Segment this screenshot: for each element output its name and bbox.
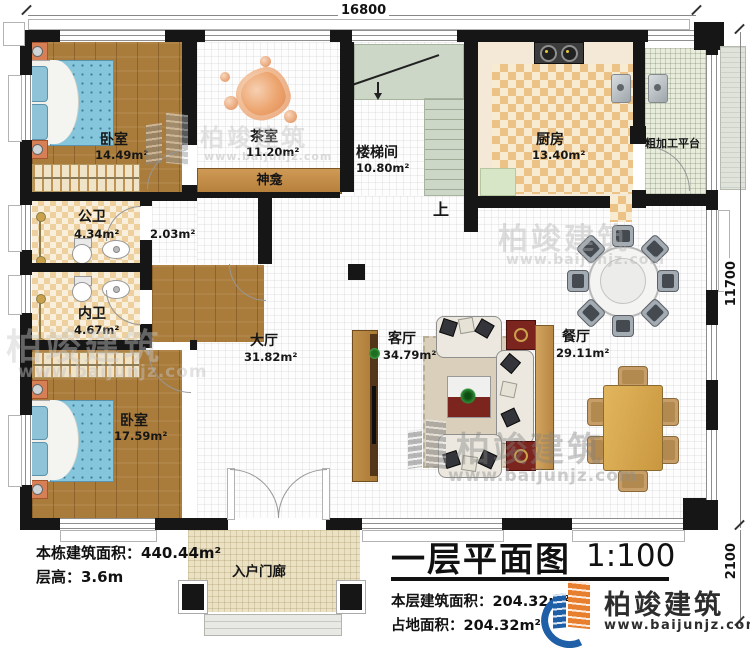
towel-rail-knob — [36, 294, 46, 304]
dining-chair — [612, 225, 634, 247]
window-sill — [60, 530, 157, 542]
kitchen-sink — [611, 74, 631, 103]
wall-segment — [645, 194, 718, 206]
note-floor-height: 层高：3.6m — [36, 566, 123, 587]
stove-burner-left — [540, 45, 557, 62]
coffee-table-plant — [460, 388, 476, 404]
window — [706, 430, 718, 500]
wall-segment — [190, 340, 197, 350]
wall-segment — [20, 518, 60, 530]
basin-public — [102, 240, 130, 259]
room-label-platform: 粗加工平台 — [645, 135, 700, 151]
window-sill — [8, 75, 22, 142]
tea-stone — [220, 72, 230, 82]
dimension-top-value: 16800 — [338, 3, 389, 18]
dining-chair — [618, 470, 648, 492]
room-area-dining: 29.11m² — [556, 346, 609, 360]
tea-stone — [260, 56, 271, 67]
stair-flight — [424, 98, 466, 196]
window-sill — [28, 19, 690, 30]
window — [60, 518, 155, 530]
room-label-porch: 入户门廊 — [232, 560, 286, 580]
stove — [534, 42, 584, 64]
sofa-pillow — [500, 381, 518, 399]
wall-pillar — [632, 190, 646, 208]
tea-stone — [224, 96, 238, 110]
dimension-right-value: 11700 — [724, 258, 739, 309]
room-label-tearoom: 茶室 — [250, 126, 278, 146]
window-sill — [8, 415, 22, 487]
floor-kitchen-entry — [610, 196, 632, 222]
porch-pillar — [340, 584, 362, 610]
room-label-shrine: 神龛 — [256, 173, 282, 188]
hall-pillar — [348, 264, 365, 280]
window-sill — [8, 275, 22, 315]
tv-wall-plant — [369, 348, 380, 359]
wall-segment — [258, 196, 272, 264]
exterior-ledge — [720, 46, 746, 190]
stove-burner-right — [561, 45, 578, 62]
wall-pillar — [630, 126, 646, 144]
room-area-bedroom2: 17.59m² — [114, 429, 167, 443]
stair-landing — [354, 44, 464, 100]
shrine-shelf: 神龛 — [197, 168, 342, 194]
room-area-tearoom: 11.20m² — [246, 145, 299, 159]
wall-segment — [20, 30, 60, 42]
wardrobe-bedroom2 — [32, 352, 140, 378]
dimension-line-right — [740, 32, 741, 528]
wall-segment — [20, 313, 32, 415]
towel-rail — [39, 216, 41, 260]
window — [60, 30, 165, 42]
wall-segment — [706, 380, 718, 430]
wall-segment — [330, 30, 352, 42]
floor-plan-canvas: 神龛 — [0, 0, 750, 648]
wall-segment — [478, 196, 610, 208]
rect-dining-table — [603, 385, 663, 471]
room-area-bedroom1: 14.49m² — [95, 148, 148, 162]
dining-chair — [612, 315, 634, 337]
room-area-hall: 31.82m² — [244, 350, 297, 364]
stairs-up-label: 上 — [433, 196, 449, 220]
towel-rail-knob — [36, 212, 46, 222]
tv-screen — [372, 386, 376, 444]
wall-segment — [633, 42, 645, 128]
logo-building-blue-icon — [553, 593, 566, 628]
side-cabinet-red — [506, 320, 536, 350]
dining-chair — [567, 270, 589, 292]
wall-segment — [706, 42, 718, 55]
platform-sink — [648, 74, 668, 103]
brand-website: www.baijunjz.com — [604, 618, 750, 633]
room-label-public-bath: 公卫 — [78, 206, 106, 226]
side-cabinet-red — [506, 441, 536, 471]
room-label-stair: 楼梯间 — [356, 142, 398, 162]
window — [706, 210, 718, 290]
wall-segment — [20, 263, 152, 272]
room-label-bedroom1: 卧室 — [100, 129, 128, 149]
dimension-bottom-right-value: 2100 — [724, 540, 739, 582]
window — [352, 30, 457, 42]
room-label-dining: 餐厅 — [562, 326, 590, 346]
dining-chair — [657, 270, 679, 292]
cabinet-emblem — [514, 328, 528, 342]
room-label-private-bath: 内卫 — [78, 303, 106, 323]
wall-segment — [182, 42, 197, 145]
wall-segment — [326, 518, 362, 530]
window — [362, 518, 502, 530]
brand-name: 柏竣建筑 — [604, 583, 724, 622]
plan-scale: 1:100 — [586, 538, 675, 574]
room-label-hall: 大厅 — [250, 330, 278, 350]
room-area-private-bath: 4.67m² — [74, 323, 119, 337]
room-label-bedroom2: 卧室 — [120, 410, 148, 430]
window — [205, 30, 330, 42]
wall-segment — [165, 30, 205, 42]
towel-rail — [39, 298, 41, 342]
kitchen-mat — [480, 168, 516, 196]
wall-segment — [140, 200, 152, 206]
room-area-kitchen: 13.40m² — [532, 148, 585, 162]
round-dining-table-top — [600, 258, 646, 304]
wall-segment — [457, 30, 648, 42]
room-area-corridor: 2.03m² — [150, 227, 195, 241]
window — [706, 325, 718, 380]
note-total-area: 本栋建筑面积：440.44m² — [36, 542, 221, 563]
stair-arrow-head — [374, 93, 382, 100]
wall-segment — [464, 42, 478, 232]
dimension-tick — [691, 5, 702, 16]
window-sill — [8, 205, 22, 252]
window — [572, 518, 683, 530]
plan-title-underline — [391, 577, 669, 581]
room-label-living: 客厅 — [388, 328, 416, 348]
wardrobe-bedroom1 — [32, 164, 140, 192]
dimension-tick — [21, 5, 32, 16]
room-area-stair: 10.80m² — [356, 161, 409, 175]
logo-building-orange-icon — [568, 581, 590, 629]
corner-pillar — [683, 498, 718, 530]
tall-cabinet — [535, 325, 554, 470]
tea-stone — [284, 110, 297, 123]
room-label-kitchen: 厨房 — [536, 129, 564, 149]
wall-segment — [20, 42, 32, 75]
room-area-living: 34.79m² — [383, 348, 436, 362]
wall-segment — [706, 290, 718, 325]
dimension-line-bottom-right — [740, 530, 741, 626]
porch-steps — [204, 614, 342, 636]
porch-pillar — [182, 584, 204, 610]
sofa-pillow — [458, 317, 475, 334]
corner-marker-box — [3, 22, 25, 46]
wall-segment — [502, 518, 572, 530]
note-footprint-area: 占地面积：204.32m² — [391, 614, 541, 635]
toilet-private — [72, 276, 92, 302]
cabinet-emblem — [514, 449, 528, 463]
wall-segment — [340, 42, 354, 192]
wall-segment — [20, 192, 197, 201]
wall-segment — [20, 340, 146, 350]
window — [706, 55, 718, 190]
window — [648, 30, 694, 42]
plan-title: 一层平面图 — [391, 532, 571, 581]
room-area-public-bath: 4.34m² — [74, 227, 119, 241]
sofa-pillow — [461, 455, 478, 472]
wall-segment — [155, 518, 228, 530]
brand-logo — [541, 580, 603, 640]
toilet-public — [72, 238, 92, 264]
